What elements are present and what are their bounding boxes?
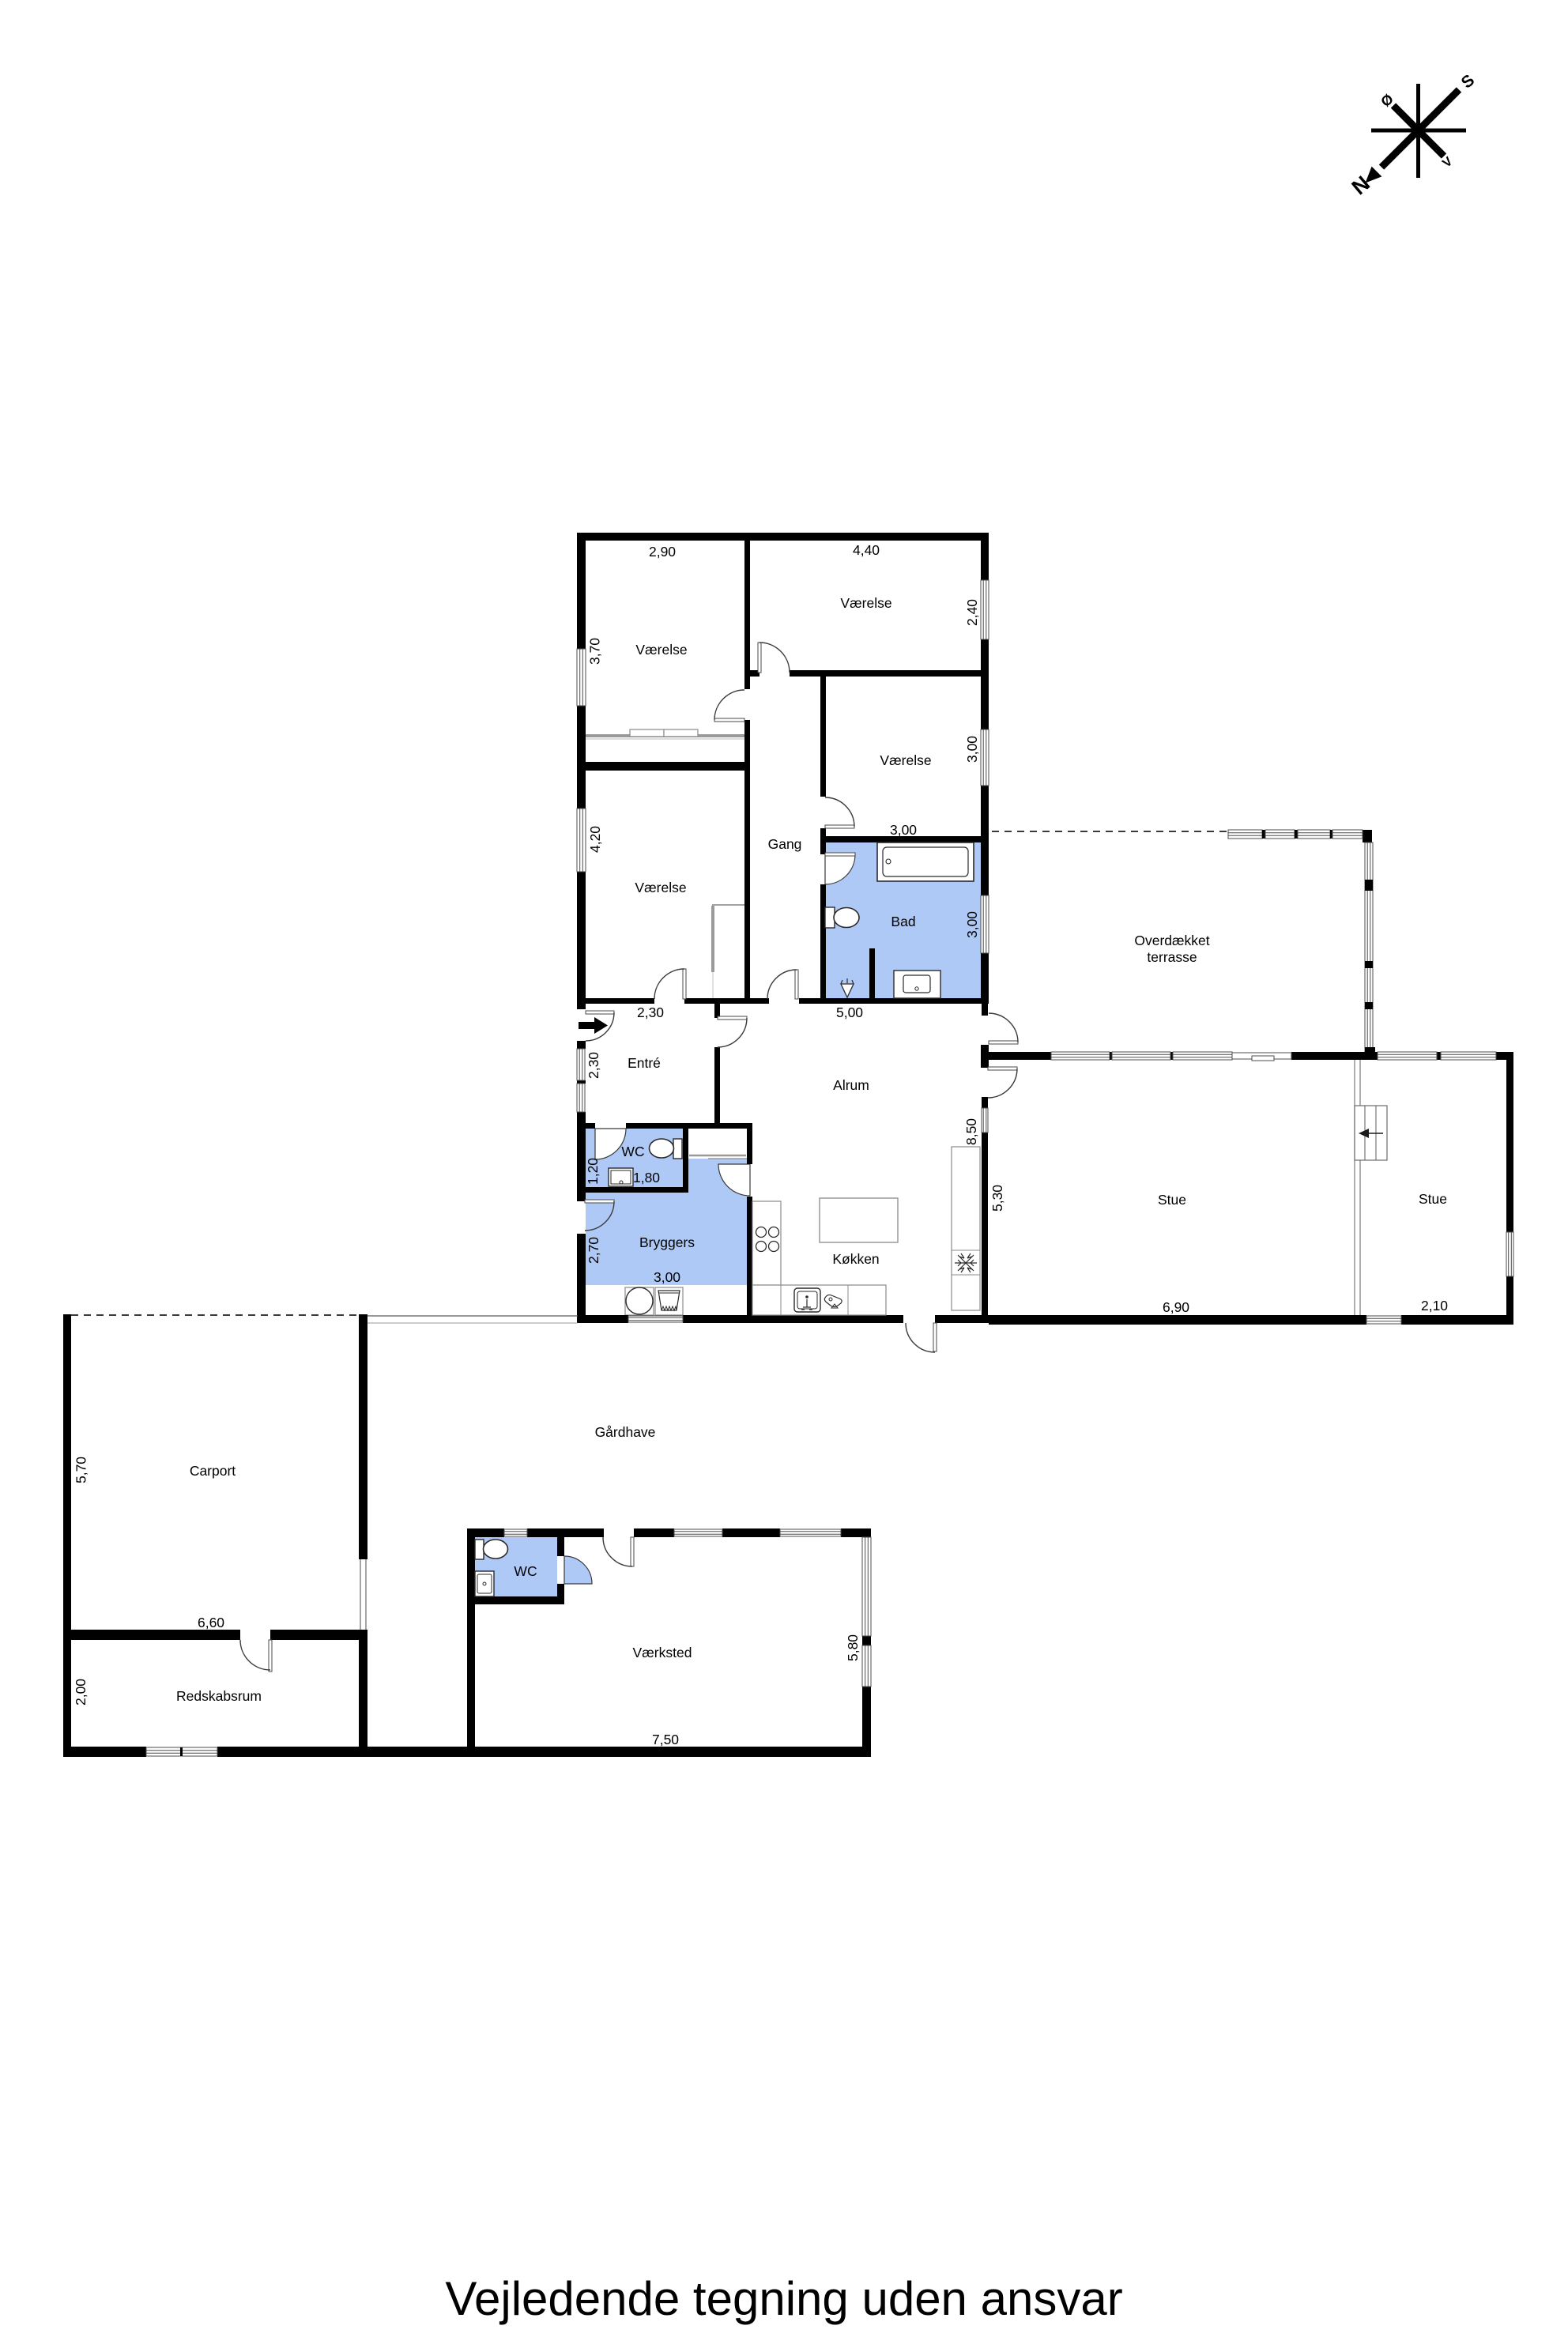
svg-text:8,50: 8,50: [963, 1118, 979, 1145]
svg-text:2,10: 2,10: [1421, 1298, 1448, 1314]
svg-text:Stue: Stue: [1419, 1191, 1447, 1207]
svg-text:3,00: 3,00: [964, 911, 980, 938]
svg-text:3,00: 3,00: [964, 736, 980, 763]
svg-text:terrasse: terrasse: [1147, 949, 1197, 965]
svg-text:3,70: 3,70: [587, 638, 603, 665]
svg-text:1,20: 1,20: [585, 1158, 601, 1185]
svg-text:5,80: 5,80: [845, 1634, 861, 1661]
svg-text:WC: WC: [514, 1563, 537, 1579]
svg-text:2,00: 2,00: [73, 1679, 89, 1706]
svg-text:1,80: 1,80: [633, 1170, 660, 1185]
svg-text:Køkken: Køkken: [832, 1251, 879, 1267]
svg-text:Gang: Gang: [768, 836, 802, 852]
svg-text:Carport: Carport: [190, 1463, 236, 1479]
svg-text:6,90: 6,90: [1163, 1299, 1189, 1315]
svg-text:Alrum: Alrum: [833, 1077, 869, 1093]
svg-text:Entré: Entré: [628, 1055, 661, 1071]
svg-text:WC: WC: [621, 1144, 644, 1159]
svg-text:5,70: 5,70: [73, 1457, 89, 1483]
svg-text:5,30: 5,30: [989, 1185, 1005, 1212]
svg-text:Vejledende tegning uden ansvar: Vejledende tegning uden ansvar: [445, 2272, 1122, 2325]
svg-text:6,60: 6,60: [198, 1615, 224, 1630]
svg-text:2,90: 2,90: [649, 544, 676, 560]
svg-text:2,30: 2,30: [586, 1052, 601, 1079]
svg-text:Værelse: Værelse: [880, 752, 931, 768]
svg-text:Værelse: Værelse: [635, 880, 686, 895]
svg-text:2,30: 2,30: [637, 1004, 664, 1020]
svg-text:Værksted: Værksted: [633, 1645, 692, 1660]
svg-text:Overdækket: Overdækket: [1134, 933, 1209, 948]
svg-text:Stue: Stue: [1158, 1192, 1186, 1208]
svg-text:Bad: Bad: [891, 914, 915, 929]
svg-text:4,40: 4,40: [853, 542, 880, 558]
svg-text:2,70: 2,70: [586, 1237, 601, 1264]
svg-text:5,00: 5,00: [836, 1004, 863, 1020]
svg-text:3,00: 3,00: [890, 822, 917, 838]
svg-text:2,40: 2,40: [964, 599, 980, 626]
svg-text:7,50: 7,50: [652, 1732, 679, 1747]
svg-text:3,00: 3,00: [654, 1269, 680, 1285]
svg-text:4,20: 4,20: [587, 826, 603, 853]
svg-text:Værelse: Værelse: [635, 642, 687, 658]
svg-text:Bryggers: Bryggers: [639, 1234, 695, 1250]
svg-text:Værelse: Værelse: [840, 595, 891, 611]
svg-text:Redskabsrum: Redskabsrum: [176, 1688, 262, 1704]
svg-text:Gårdhave: Gårdhave: [595, 1424, 656, 1440]
